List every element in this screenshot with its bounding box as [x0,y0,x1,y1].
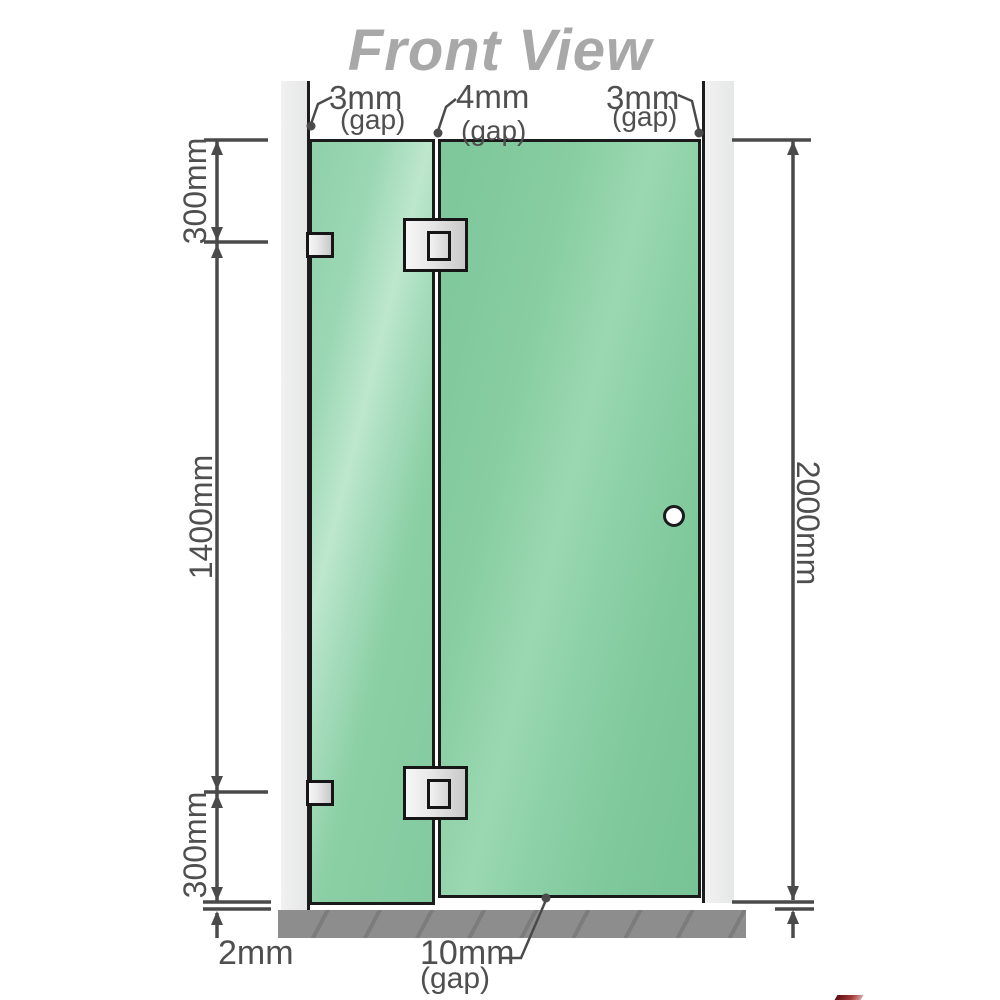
gap-bottom-unit: (gap) [420,964,490,994]
wall-bracket-top-icon [306,232,334,258]
floor-clearance-value: 2mm [218,936,294,970]
arrow-up-icon [211,911,223,925]
gap-left-unit: (gap) [340,106,405,134]
leader-dot-icon [434,129,443,138]
hinge-top-clamp-icon [427,231,451,261]
gap-right-unit: (gap) [612,103,677,131]
hinge-bottom-clamp-icon [427,779,451,809]
wall-bracket-bottom-icon [306,780,334,806]
arrow-up-icon [787,910,799,924]
arrow-down-icon [787,886,799,900]
gap-middle-value: 4mm [456,80,529,113]
front-view-diagram: Front View [0,0,1000,1000]
watermark-fragment [835,995,864,1000]
dim-top-hinge-offset: 300mm [179,138,211,245]
right-wall [702,81,734,903]
dim-bottom-hinge-offset: 300mm [179,792,211,899]
arrow-up-icon [211,244,223,258]
arrow-down-icon [211,776,223,790]
gap-middle-unit: (gap) [461,117,526,145]
door-glass-panel [438,139,701,898]
dim-hinge-spacing: 1400mm [185,455,217,580]
leader-gap-middle [438,99,456,131]
page-title: Front View [348,22,652,80]
dim-total-height: 2000mm [792,461,824,586]
arrow-up-icon [787,141,799,155]
leader-gap-right [678,95,699,131]
door-knob-icon [663,505,685,527]
